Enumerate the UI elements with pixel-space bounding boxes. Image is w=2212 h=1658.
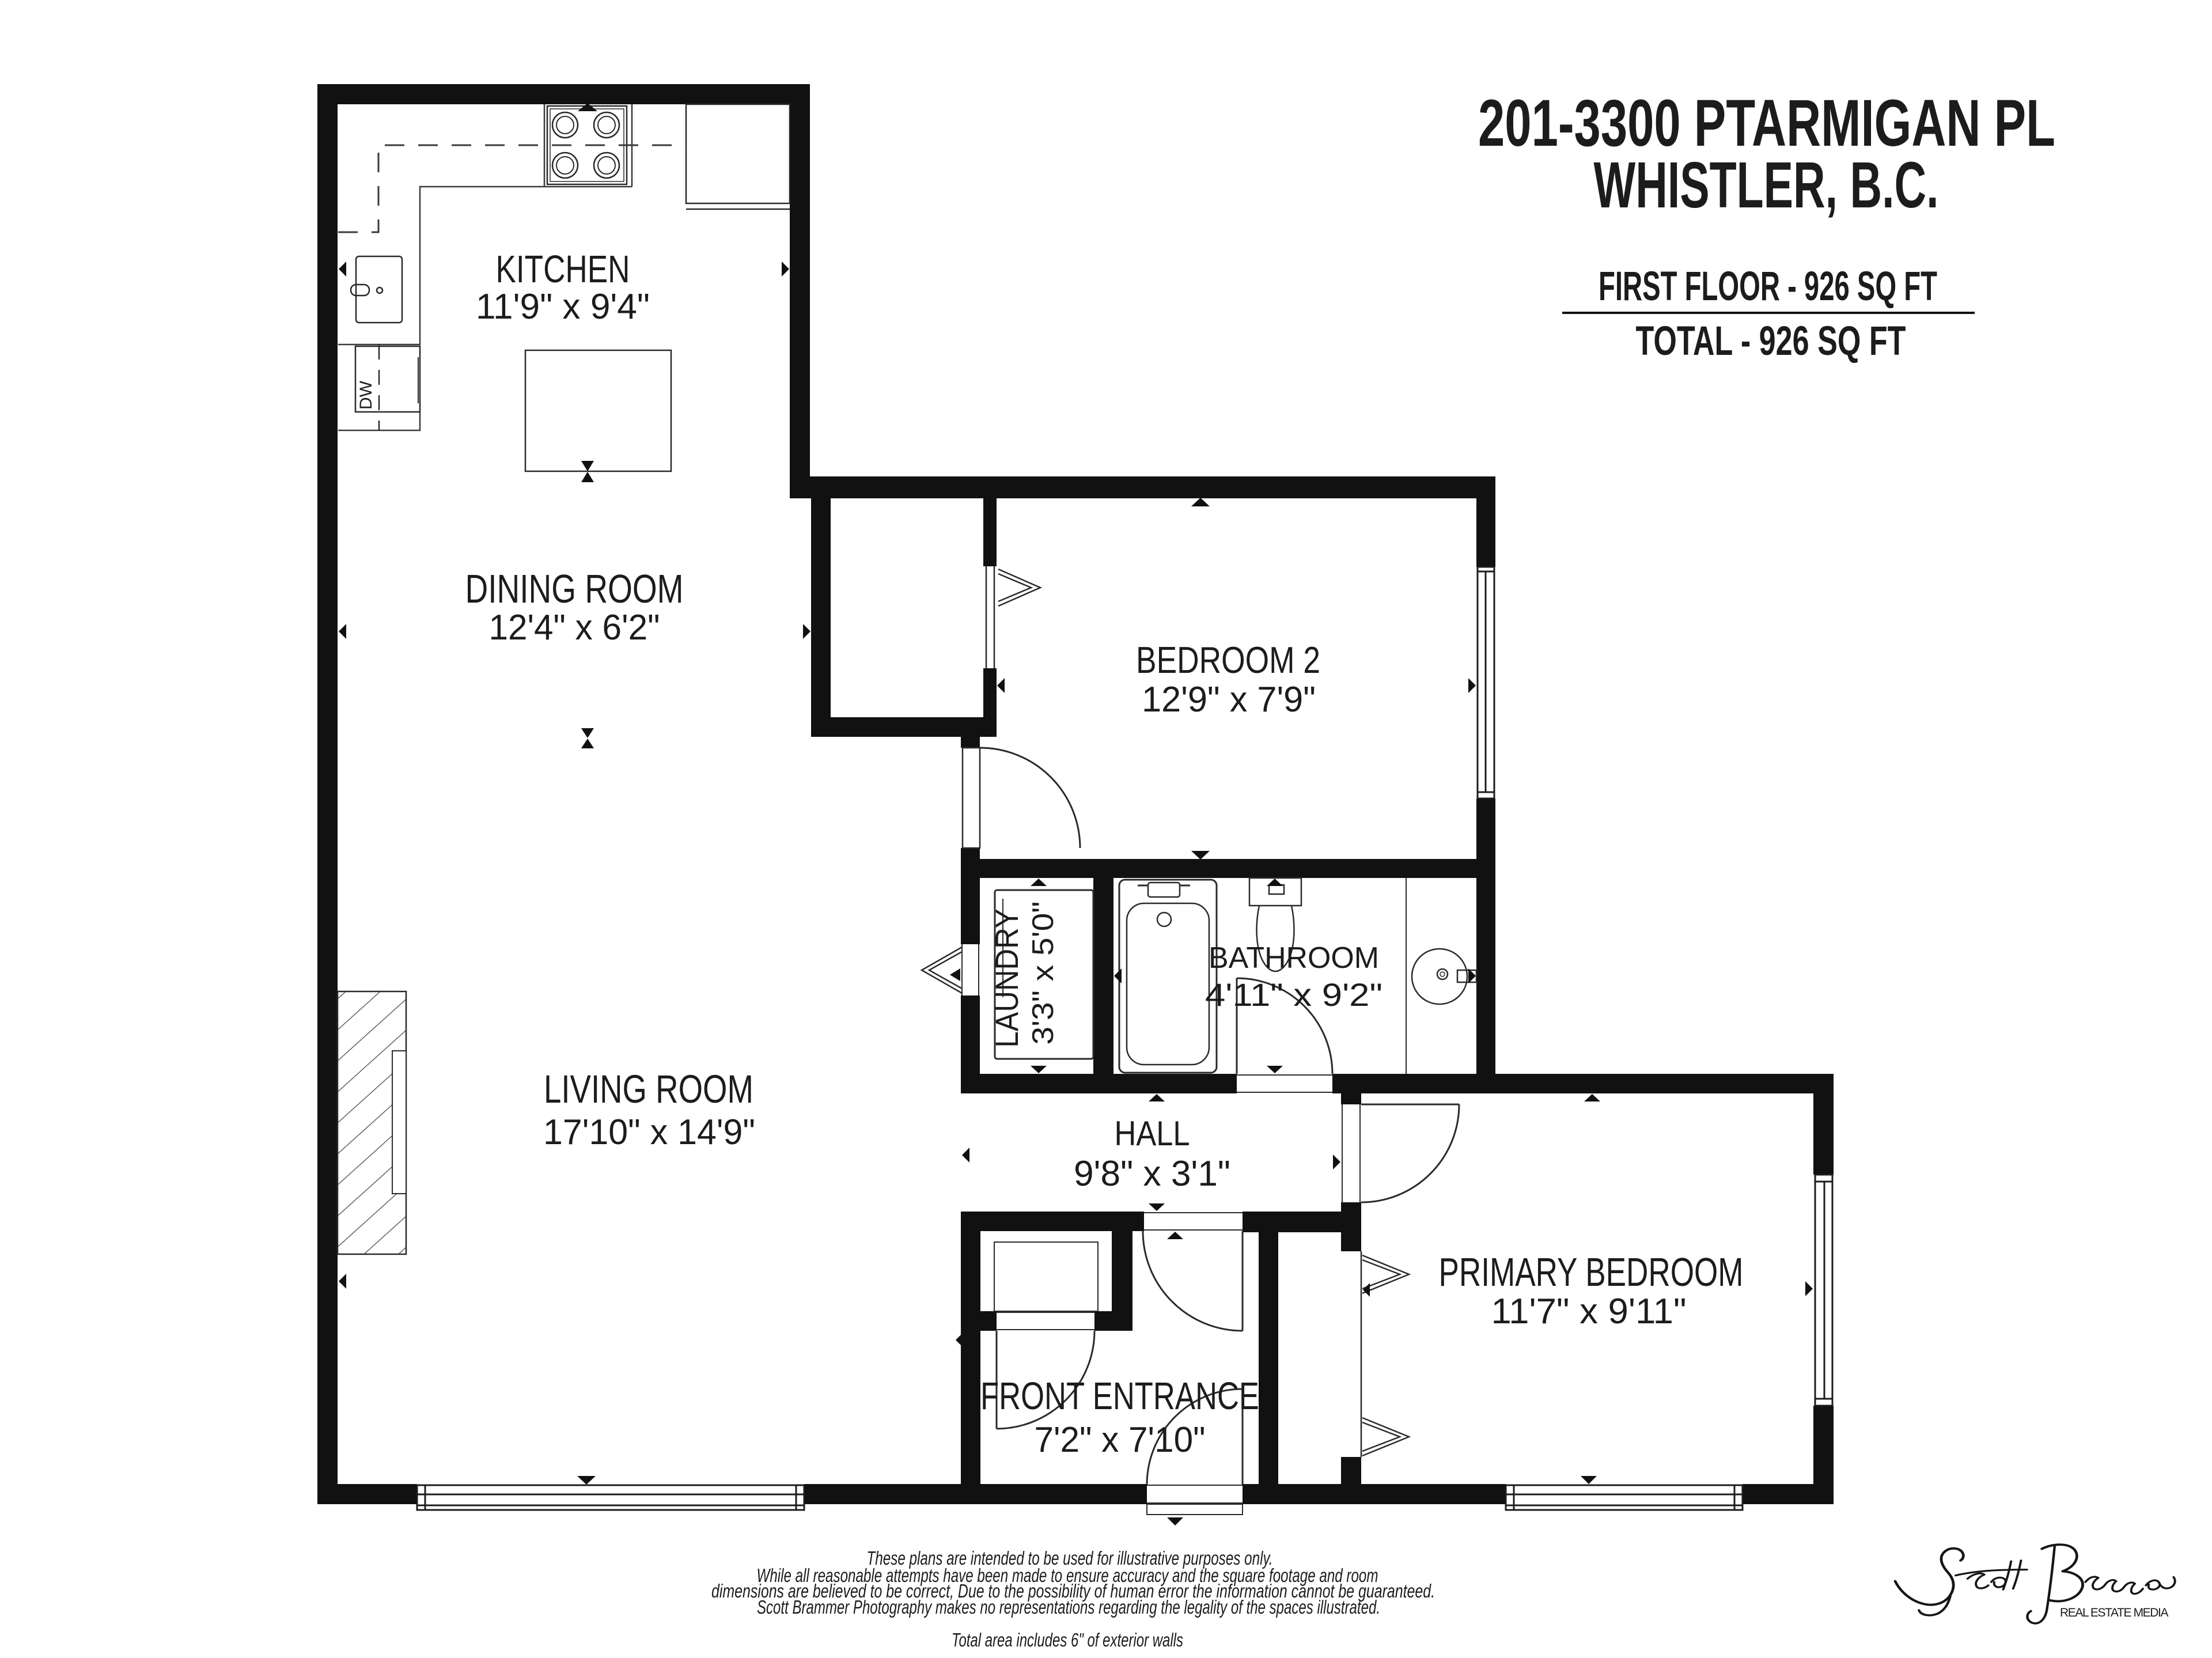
svg-text:DW: DW: [357, 380, 376, 410]
svg-text:LAUNDRY: LAUNDRY: [988, 909, 1025, 1048]
svg-text:4'11" x 9'2": 4'11" x 9'2": [1205, 976, 1382, 1013]
svg-text:KITCHEN: KITCHEN: [496, 248, 630, 291]
svg-text:Scott Brammer Photography make: Scott Brammer Photography makes no repre…: [757, 1596, 1380, 1618]
svg-text:Total area includes 6" of exte: Total area includes 6" of exterior walls: [952, 1629, 1183, 1651]
svg-text:DINING ROOM: DINING ROOM: [465, 566, 684, 611]
svg-text:FIRST FLOOR - 926 SQ FT: FIRST FLOOR - 926 SQ FT: [1599, 264, 1937, 309]
svg-text:BATHROOM: BATHROOM: [1209, 941, 1379, 975]
svg-text:17'10" x 14'9": 17'10" x 14'9": [543, 1112, 755, 1152]
svg-text:11'9" x 9'4": 11'9" x 9'4": [476, 287, 650, 327]
svg-text:BEDROOM 2: BEDROOM 2: [1136, 639, 1320, 681]
svg-text:9'8" x 3'1": 9'8" x 3'1": [1074, 1154, 1230, 1194]
svg-text:3'3" x 5'0": 3'3" x 5'0": [1027, 902, 1060, 1045]
svg-text:11'7" x 9'11": 11'7" x 9'11": [1491, 1292, 1687, 1331]
svg-text:LIVING ROOM: LIVING ROOM: [544, 1067, 753, 1111]
svg-text:FRONT ENTRANCE: FRONT ENTRANCE: [980, 1375, 1259, 1418]
svg-text:REAL ESTATE MEDIA: REAL ESTATE MEDIA: [2060, 1606, 2171, 1619]
svg-text:TOTAL - 926 SQ FT: TOTAL - 926 SQ FT: [1636, 319, 1906, 364]
svg-text:12'9" x 7'9": 12'9" x 7'9": [1142, 680, 1316, 720]
svg-text:WHISTLER, B.C.: WHISTLER, B.C.: [1594, 149, 1939, 221]
svg-text:12'4" x 6'2": 12'4" x 6'2": [489, 608, 660, 648]
svg-text:7'2" x 7'10": 7'2" x 7'10": [1035, 1420, 1206, 1460]
svg-text:PRIMARY BEDROOM: PRIMARY BEDROOM: [1439, 1250, 1744, 1294]
svg-text:HALL: HALL: [1115, 1114, 1190, 1153]
